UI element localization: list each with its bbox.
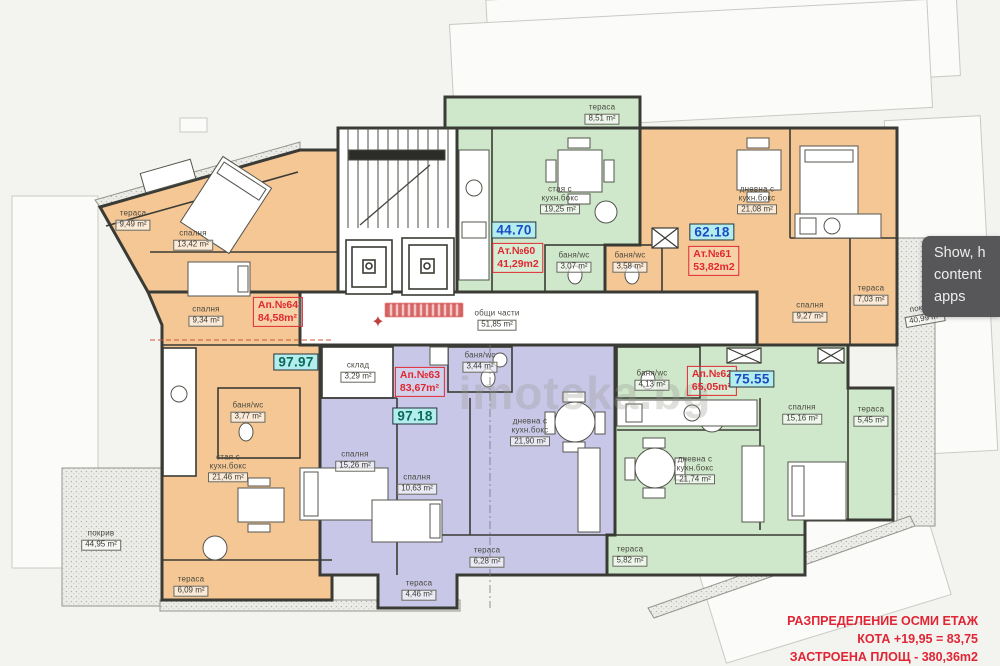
room-label: дневна с кухн.бокс21,74 m² xyxy=(664,455,726,484)
room-label: стая с кухн.бокс21,46 m² xyxy=(197,453,259,482)
room-label: спалня13,42 m² xyxy=(173,230,213,251)
red-stamp xyxy=(385,303,463,317)
tooltip-line-2: content xyxy=(934,265,1000,287)
room-label: спалня9,27 m² xyxy=(792,302,827,323)
title-line-2: КОТА +19,95 = 83,75 xyxy=(678,630,978,648)
area-badge-60: 44.70 xyxy=(491,222,536,239)
room-label: баня/wc3,58 m² xyxy=(612,252,647,273)
common-corridor xyxy=(300,292,757,345)
floorplan-page: тераса8,51 m² стая с кухн.бокс19,25 m² б… xyxy=(0,0,1000,666)
room-label: дневна с кухн.бокс21,90 m² xyxy=(499,417,561,446)
watermark: imoteka.bg xyxy=(459,366,712,420)
room-label: спалня9,34 m² xyxy=(188,306,223,327)
area-badge-63: 97.18 xyxy=(392,408,437,425)
room-label: баня/wc3,77 m² xyxy=(230,402,265,423)
room-label: тераса6,28 m² xyxy=(469,547,504,568)
room-label: спалня15,16 m² xyxy=(782,404,822,425)
room-label: склад3,29 m² xyxy=(340,362,375,383)
apartment-label-64: Ап.№6484,58m² xyxy=(253,297,303,327)
room-label: баня/wc3,07 m² xyxy=(556,252,591,273)
os-tooltip[interactable]: Show, h content apps xyxy=(922,236,1000,317)
area-badge-64: 97.97 xyxy=(273,354,318,371)
room-label: тераса5,82 m² xyxy=(612,546,647,567)
title-block: РАЗПРЕДЕЛЕНИЕ ОСМИ ЕТАЖ КОТА +19,95 = 83… xyxy=(678,612,978,666)
room-label: тераса6,09 m² xyxy=(173,576,208,597)
room-label: баня/wc3,44 m² xyxy=(462,352,497,373)
room-label: тераса7,03 m² xyxy=(853,285,888,306)
area-badge-62: 75.55 xyxy=(729,371,774,388)
room-label: тераса9,49 m² xyxy=(115,210,150,231)
room-label: тераса8,51 m² xyxy=(584,104,619,125)
apartment-label-61: Ат.№6153,82m2 xyxy=(688,246,739,276)
room-label: тераса5,45 m² xyxy=(853,406,888,427)
room-label: тераса4,46 m² xyxy=(401,580,436,601)
tooltip-line-3: apps xyxy=(934,287,1000,309)
room-label: дневна с кухн.бокс21,08 m² xyxy=(726,185,788,214)
room-label: спалня10,63 m² xyxy=(397,474,437,495)
title-line-1: РАЗПРЕДЕЛЕНИЕ ОСМИ ЕТАЖ xyxy=(678,612,978,630)
apartment-label-63: Ап.№6383,67m² xyxy=(395,367,445,397)
apartment-label-60: Ат.№6041,29m2 xyxy=(492,243,543,273)
room-label: стая с кухн.бокс19,25 m² xyxy=(529,185,591,214)
area-badge-61: 62.18 xyxy=(689,224,734,241)
tooltip-line-1: Show, h xyxy=(934,243,1000,265)
title-line-3: ЗАСТРОЕНА ПЛОЩ - 380,36m2 xyxy=(678,648,978,666)
room-label: баня/wc4,13 m² xyxy=(634,370,669,391)
roof-label: покрив44,95 m² xyxy=(81,530,121,551)
room-label: спалня15,26 m² xyxy=(335,451,375,472)
common-area-label: общи части51,85 m² xyxy=(474,310,519,331)
compass-star-icon: ✦ xyxy=(371,312,384,332)
